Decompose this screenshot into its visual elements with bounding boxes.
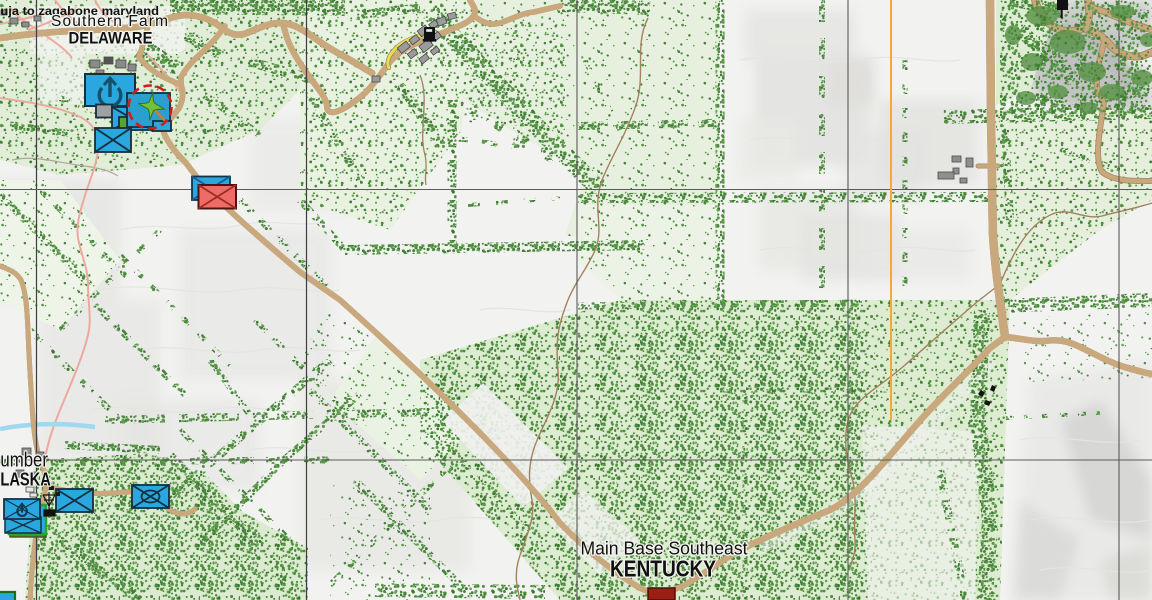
svg-text:DELAWARE: DELAWARE: [69, 30, 153, 48]
svg-text:Southern Farm: Southern Farm: [51, 13, 168, 30]
svg-text:KENTUCKY: KENTUCKY: [610, 556, 716, 582]
svg-text:ALASKA: ALASKA: [0, 468, 51, 489]
